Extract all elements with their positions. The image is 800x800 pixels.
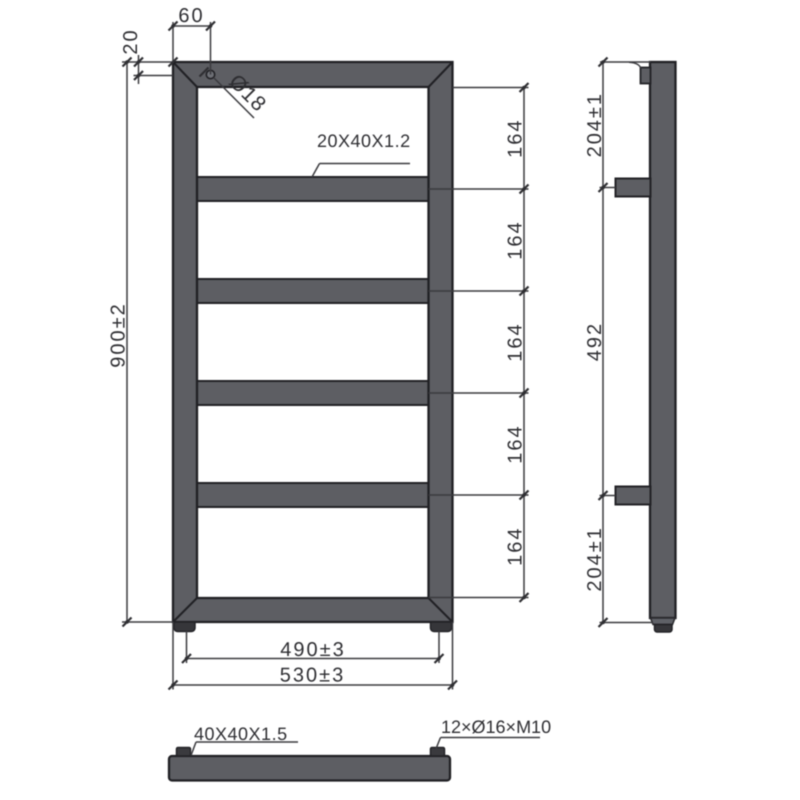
svg-text:900±2: 900±2: [108, 302, 130, 367]
svg-text:204±1: 204±1: [584, 92, 606, 157]
svg-text:20X40X1.2: 20X40X1.2: [317, 131, 411, 151]
svg-text:492: 492: [584, 322, 606, 361]
svg-text:530±3: 530±3: [280, 665, 345, 687]
svg-text:164: 164: [505, 424, 527, 463]
svg-text:20: 20: [120, 28, 142, 54]
svg-text:164: 164: [505, 527, 527, 566]
svg-text:164: 164: [505, 119, 527, 158]
svg-text:164: 164: [505, 322, 527, 361]
svg-text:204±1: 204±1: [584, 526, 606, 591]
svg-text:40X40X1.5: 40X40X1.5: [194, 724, 288, 744]
svg-text:164: 164: [505, 220, 527, 259]
svg-text:60: 60: [178, 5, 204, 27]
svg-text:490±3: 490±3: [280, 639, 345, 661]
svg-text:12×Ø16×M10: 12×Ø16×M10: [441, 717, 551, 737]
